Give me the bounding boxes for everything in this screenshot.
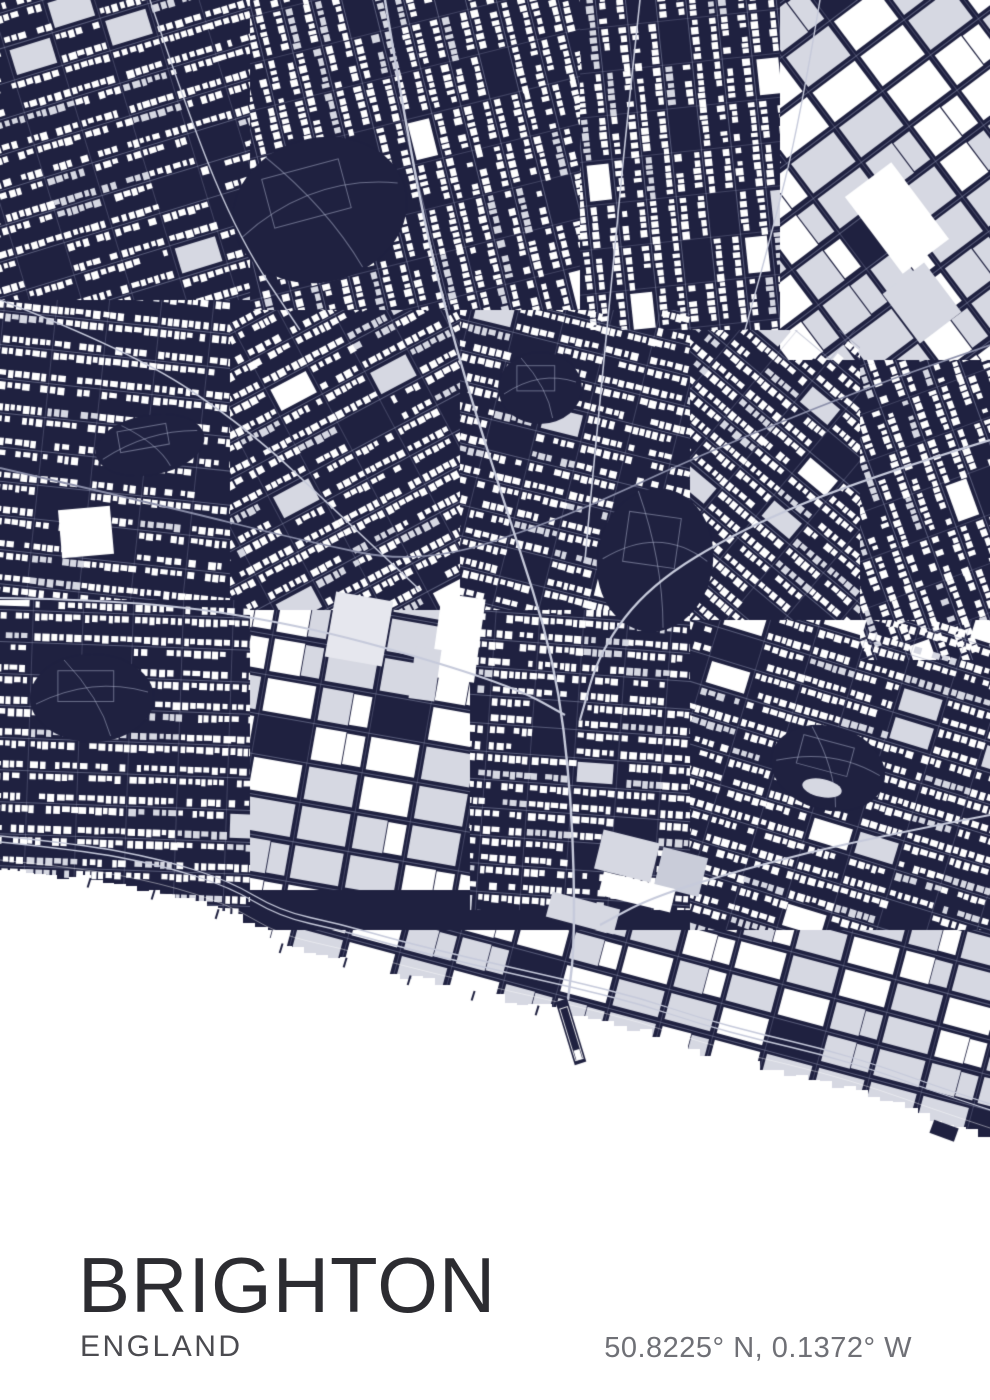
city-title: BRIGHTON [78,1246,496,1324]
country-label: ENGLAND [80,1330,243,1364]
coordinates-label: 50.8225° N, 0.1372° W [604,1332,912,1365]
poster-footer: BRIGHTON ENGLAND 50.8225° N, 0.1372° W [78,1240,912,1380]
poster-root: BRIGHTON ENGLAND 50.8225° N, 0.1372° W [0,0,990,1400]
city-map-canvas [0,0,990,1400]
